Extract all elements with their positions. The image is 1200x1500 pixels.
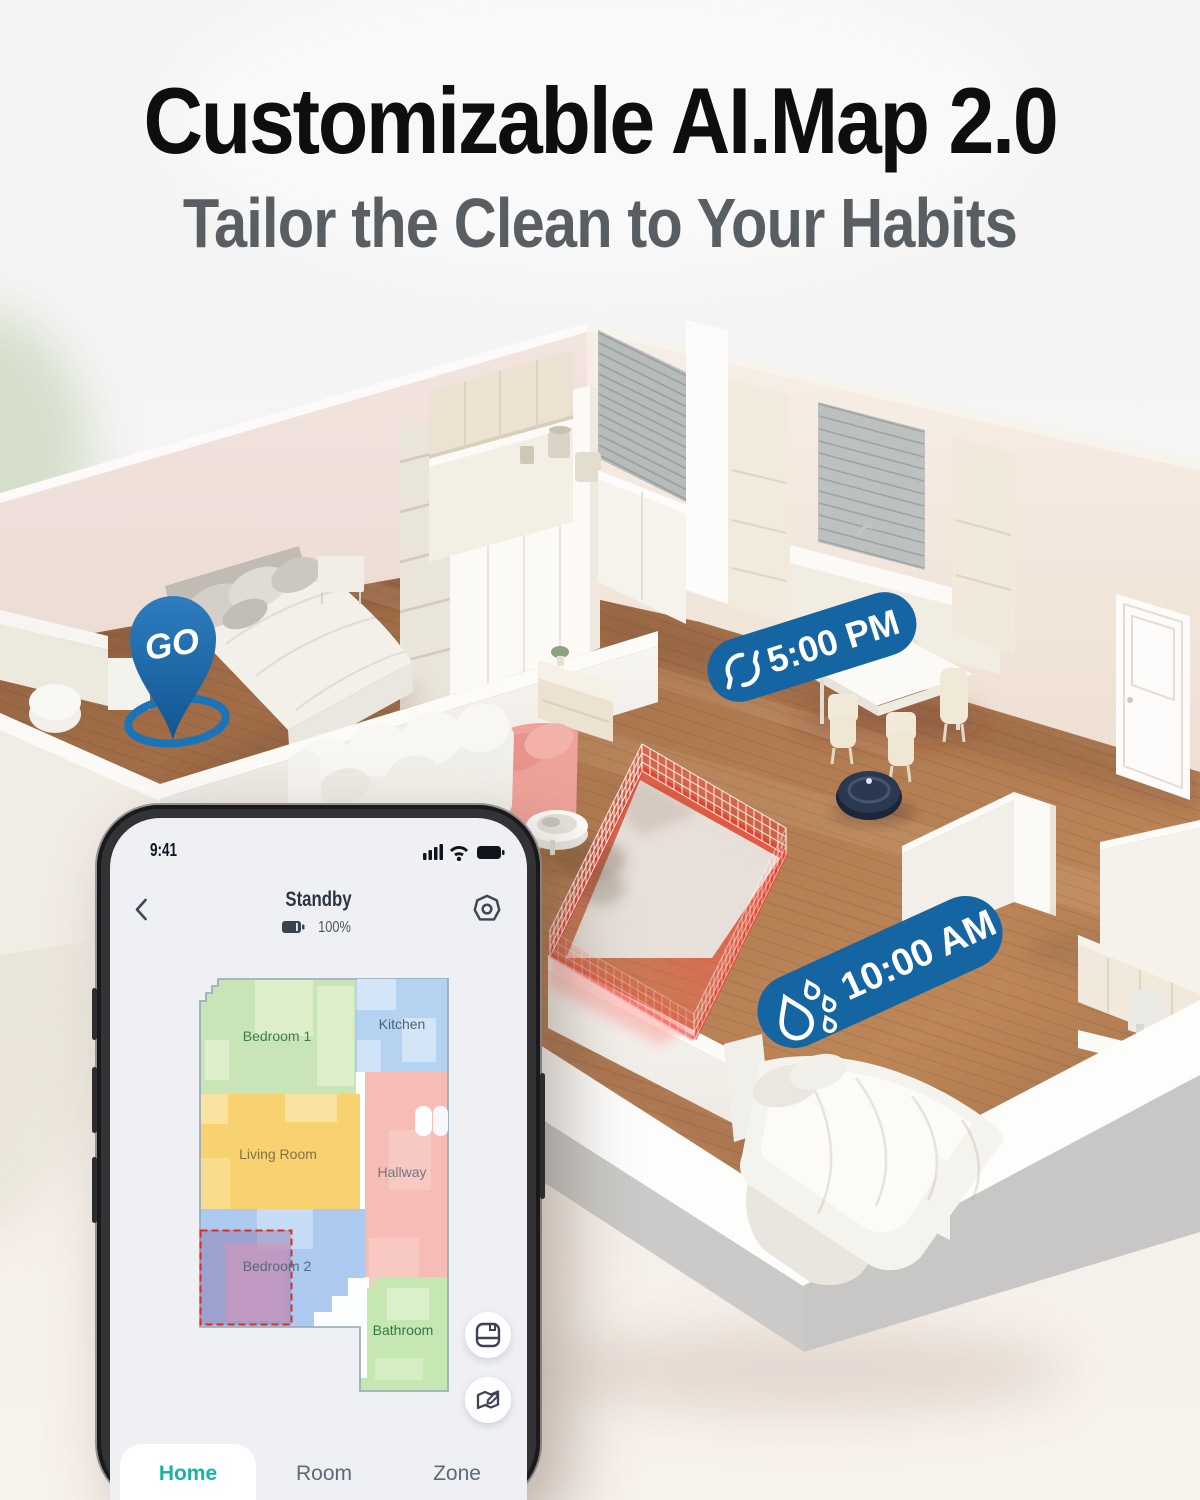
svg-text:Bedroom 2: Bedroom 2 bbox=[243, 1258, 312, 1274]
svg-text:Bedroom 1: Bedroom 1 bbox=[243, 1028, 312, 1044]
svg-text:Hallway: Hallway bbox=[377, 1164, 426, 1180]
svg-text:Bathroom: Bathroom bbox=[373, 1322, 434, 1338]
svg-text:Kitchen: Kitchen bbox=[379, 1016, 426, 1032]
svg-text:Living Room: Living Room bbox=[239, 1146, 317, 1162]
